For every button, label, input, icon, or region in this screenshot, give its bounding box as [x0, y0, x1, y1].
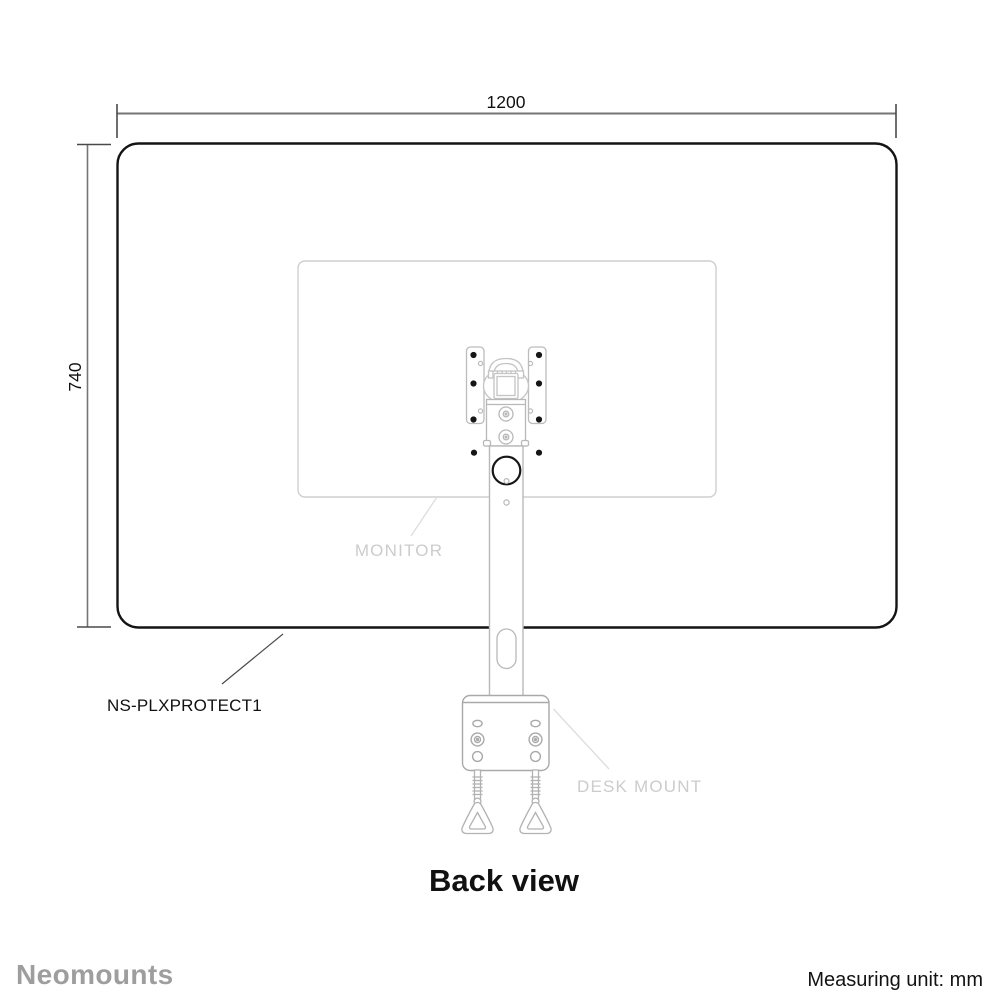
monitor-label: MONITOR: [355, 541, 443, 560]
width-dimension: 1200: [117, 92, 896, 138]
desk-clamp: [463, 696, 550, 771]
pole-slot: [497, 629, 516, 669]
tilt-bracket: [484, 400, 529, 447]
dimension-width-label: 1200: [487, 92, 526, 112]
technical-diagram-page: 1200 740 MONITOR NS-PLXPROTECT1: [0, 0, 1004, 1004]
desk-mount-label: DESK MOUNT: [577, 777, 702, 796]
height-dimension: 740: [65, 144, 111, 627]
view-title: Back view: [429, 863, 580, 898]
back-view-diagram: 1200 740 MONITOR NS-PLXPROTECT1: [0, 0, 1004, 1004]
pole-locking-ring: [493, 457, 521, 485]
measuring-unit-note: Measuring unit: mm: [807, 969, 983, 991]
clamp-screw-left: [462, 770, 493, 834]
dimension-height-label: 740: [65, 362, 85, 391]
product-code-leader-line: [222, 634, 283, 684]
desk-mount-leader-line: [554, 709, 610, 769]
clamp-screw-right: [520, 770, 551, 834]
product-code-label: NS-PLXPROTECT1: [107, 696, 262, 715]
brand-logo: Neomounts: [16, 959, 174, 990]
